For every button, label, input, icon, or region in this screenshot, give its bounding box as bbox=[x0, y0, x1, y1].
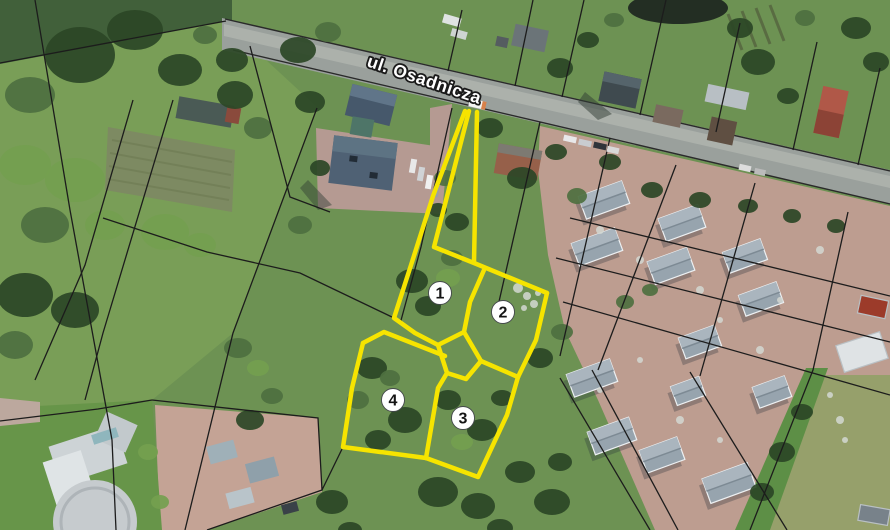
tree bbox=[795, 10, 815, 26]
tree bbox=[418, 477, 458, 507]
rubble-dot bbox=[523, 292, 531, 300]
tree bbox=[158, 54, 202, 86]
tree bbox=[545, 144, 567, 160]
rubble-dot bbox=[637, 357, 643, 363]
tree bbox=[445, 213, 469, 231]
aerial-parcel-map: 1234 ul. Osadnicza bbox=[0, 0, 890, 530]
tree bbox=[45, 27, 115, 83]
tree bbox=[505, 461, 535, 483]
rubble-dot bbox=[717, 437, 723, 443]
rubble-dot bbox=[836, 416, 844, 424]
tree bbox=[236, 410, 264, 430]
tree bbox=[642, 284, 658, 296]
tree bbox=[316, 490, 348, 514]
tree bbox=[769, 442, 795, 462]
tree bbox=[193, 26, 217, 44]
rubble-dot bbox=[596, 226, 604, 234]
tree bbox=[217, 81, 253, 109]
tree bbox=[641, 182, 663, 198]
tree bbox=[5, 77, 55, 113]
tree bbox=[599, 154, 621, 170]
tree bbox=[21, 207, 69, 243]
pavement-left bbox=[0, 398, 40, 426]
rubble-dot bbox=[530, 300, 538, 308]
rubble-dot bbox=[827, 392, 833, 398]
tree bbox=[534, 489, 570, 515]
tree bbox=[0, 145, 51, 185]
parcel-badge-4: 4 bbox=[382, 389, 405, 412]
tree bbox=[138, 444, 158, 460]
tree bbox=[577, 32, 599, 48]
tree bbox=[107, 10, 163, 50]
tree bbox=[863, 52, 889, 72]
tree bbox=[477, 118, 503, 138]
tree bbox=[741, 49, 775, 75]
parcel-number: 3 bbox=[459, 411, 468, 428]
rubble-dot bbox=[777, 297, 783, 303]
tree bbox=[551, 324, 573, 340]
tree bbox=[288, 216, 312, 234]
parcel-number: 2 bbox=[499, 305, 508, 322]
rubble-dot bbox=[717, 317, 723, 323]
tree bbox=[777, 88, 799, 104]
tree bbox=[507, 167, 537, 189]
tree bbox=[380, 370, 400, 386]
tree bbox=[461, 493, 495, 519]
tree bbox=[45, 158, 105, 202]
tree bbox=[841, 17, 871, 39]
tree bbox=[151, 495, 169, 509]
tree bbox=[783, 209, 801, 223]
tree bbox=[85, 210, 125, 240]
parcel-number: 4 bbox=[389, 393, 398, 410]
tree bbox=[604, 13, 624, 27]
tree bbox=[216, 48, 248, 72]
tree bbox=[51, 292, 99, 328]
parcel-boundary-2 bbox=[474, 112, 477, 262]
tree bbox=[567, 188, 587, 204]
rubble-dot bbox=[756, 346, 764, 354]
rubble-dot bbox=[816, 246, 824, 254]
tree bbox=[295, 91, 325, 113]
tree bbox=[727, 18, 753, 38]
parcel-badge-3: 3 bbox=[452, 407, 475, 430]
tree bbox=[365, 430, 391, 450]
rubble-dot bbox=[676, 416, 684, 424]
tree bbox=[451, 434, 473, 450]
tree bbox=[261, 388, 283, 404]
tree bbox=[280, 37, 316, 63]
tree bbox=[141, 214, 189, 250]
aerial-photo: 1234 ul. Osadnicza bbox=[0, 0, 890, 530]
rubble-dot bbox=[521, 305, 527, 311]
tree bbox=[247, 360, 269, 376]
parcel-badge-1: 1 bbox=[429, 282, 452, 305]
parcel-badge-2: 2 bbox=[492, 301, 515, 324]
tree bbox=[244, 117, 272, 139]
tree bbox=[310, 160, 330, 176]
parcel-number: 1 bbox=[436, 286, 445, 303]
tree bbox=[548, 453, 572, 471]
tree bbox=[315, 22, 341, 42]
tree bbox=[689, 192, 711, 208]
rubble-dot bbox=[842, 437, 848, 443]
rubble-dot bbox=[696, 286, 704, 294]
tree bbox=[827, 219, 845, 233]
tree bbox=[616, 295, 634, 309]
